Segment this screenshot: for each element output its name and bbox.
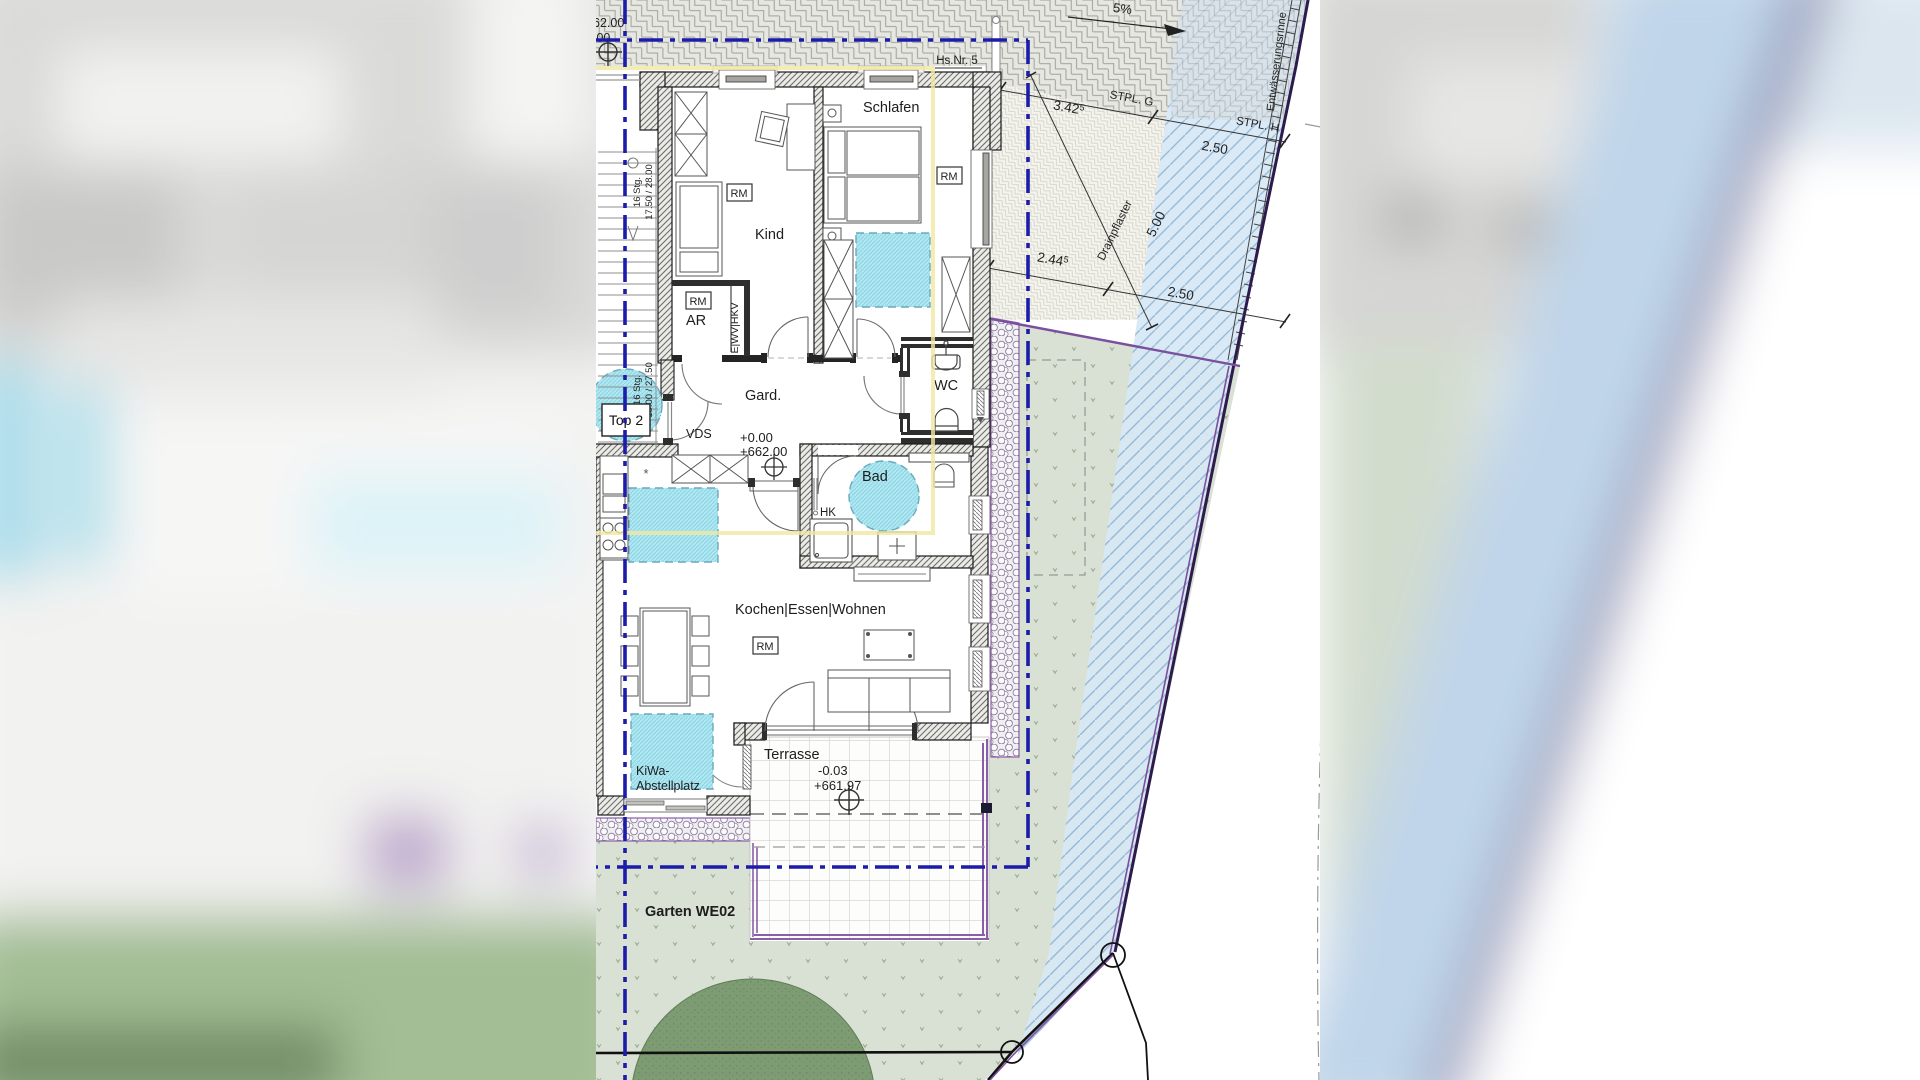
svg-text:KiWa-: KiWa- (636, 764, 670, 778)
svg-text:AR: AR (686, 313, 706, 329)
svg-text:+661.97: +661.97 (814, 778, 861, 793)
svg-text:5%: 5% (1112, 0, 1133, 17)
svg-text:Gard.: Gard. (745, 388, 781, 404)
svg-text:RM: RM (689, 296, 706, 308)
svg-text:Kind: Kind (755, 227, 784, 243)
svg-text:17.50 / 28.00: 17.50 / 28.00 (644, 164, 655, 219)
svg-text:E|WV|HKV: E|WV|HKV (729, 303, 741, 354)
svg-text:16 Stg.: 16 Stg. (632, 177, 643, 207)
svg-text:RM: RM (730, 188, 747, 200)
svg-text:-0.03: -0.03 (818, 763, 848, 778)
svg-text:VDS: VDS (686, 427, 712, 441)
svg-text:+662.00: +662.00 (740, 444, 787, 459)
svg-text:RM: RM (940, 171, 957, 183)
svg-text:Garten WE02: Garten WE02 (645, 904, 735, 920)
svg-text:Terrasse: Terrasse (764, 747, 820, 763)
svg-text:HK: HK (820, 507, 836, 519)
svg-text:Kochen|Essen|Wohnen: Kochen|Essen|Wohnen (735, 602, 886, 618)
svg-text:RM: RM (756, 641, 773, 653)
svg-text:+0.00: +0.00 (740, 430, 773, 445)
svg-text:WC: WC (934, 378, 958, 394)
svg-text:Abstellplatz: Abstellplatz (636, 779, 700, 793)
svg-text:62.00: 62.00 (593, 16, 624, 30)
svg-text:16 Stg.: 16 Stg. (632, 375, 643, 405)
svg-text:*: * (643, 466, 648, 481)
svg-text:Schlafen: Schlafen (863, 100, 919, 116)
svg-text:Bad: Bad (862, 469, 888, 485)
svg-text:Hs.Nr. 5: Hs.Nr. 5 (936, 55, 978, 67)
